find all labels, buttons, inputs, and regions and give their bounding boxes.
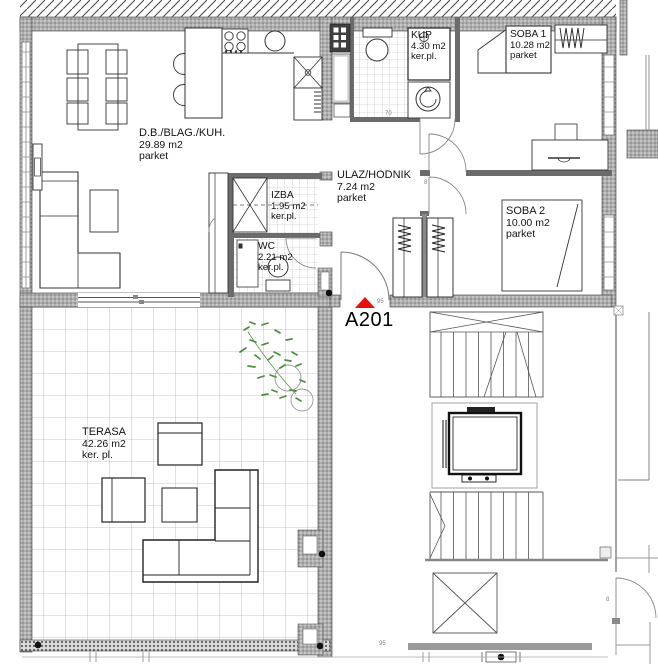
room-label-ulaz: ULAZ/HODNIK 7.24 m2 parket: [337, 170, 411, 205]
unit-marker-triangle: [355, 297, 375, 308]
dining-set: [67, 44, 127, 130]
room-label-terasa: TERASA 42.26 m2 ker. pl.: [82, 427, 126, 462]
room-name: D.B./BLAG./KUH.: [139, 128, 225, 140]
room-name: SOBA 2: [506, 206, 550, 218]
room-label-wc: WC 2.21 m2 ker.pl.: [258, 242, 293, 274]
floor-plan-drawing: [0, 0, 658, 664]
room-floor: ker.pl.: [258, 263, 293, 274]
room-floor: ker. pl.: [82, 450, 126, 462]
room-floor: ker.pl.: [271, 212, 306, 223]
dim-entry-door: 95: [377, 299, 384, 305]
kitchen-counter: [174, 28, 323, 120]
room-label-soba1: SOBA 1 10.28 m2 parket: [510, 30, 550, 62]
room-name: WC: [258, 242, 293, 253]
dim-kup-door: 70: [385, 111, 392, 117]
floor-plan: D.B./BLAG./KUH. 29.89 m2 parket KUP 4.30…: [0, 0, 658, 664]
dim-stair-door: 8: [606, 597, 609, 603]
room-floor: parket: [337, 193, 411, 205]
room-floor: parket: [506, 229, 550, 241]
dim-stair-width: 95: [379, 641, 386, 647]
unit-code-label: A201: [345, 310, 394, 330]
room-floor: ker.pl.: [411, 52, 446, 63]
room-floor: parket: [510, 51, 550, 62]
room-name: ULAZ/HODNIK: [337, 170, 411, 182]
room-name: KUP: [411, 31, 446, 42]
room-floor: parket: [139, 151, 225, 163]
room-name: TERASA: [82, 427, 126, 439]
living-furniture: [33, 144, 228, 293]
room-label-soba2: SOBA 2 10.00 m2 parket: [506, 206, 550, 241]
room-label-kup: KUP 4.30 m2 ker.pl.: [411, 31, 446, 63]
dim-soba-door: 8: [424, 180, 427, 186]
room-name: SOBA 1: [510, 30, 550, 41]
room-label-living: D.B./BLAG./KUH. 29.89 m2 parket: [139, 128, 225, 163]
room-name: IZBA: [271, 191, 306, 202]
room-label-izba: IZBA 1.95 m2 ker.pl.: [271, 191, 306, 223]
